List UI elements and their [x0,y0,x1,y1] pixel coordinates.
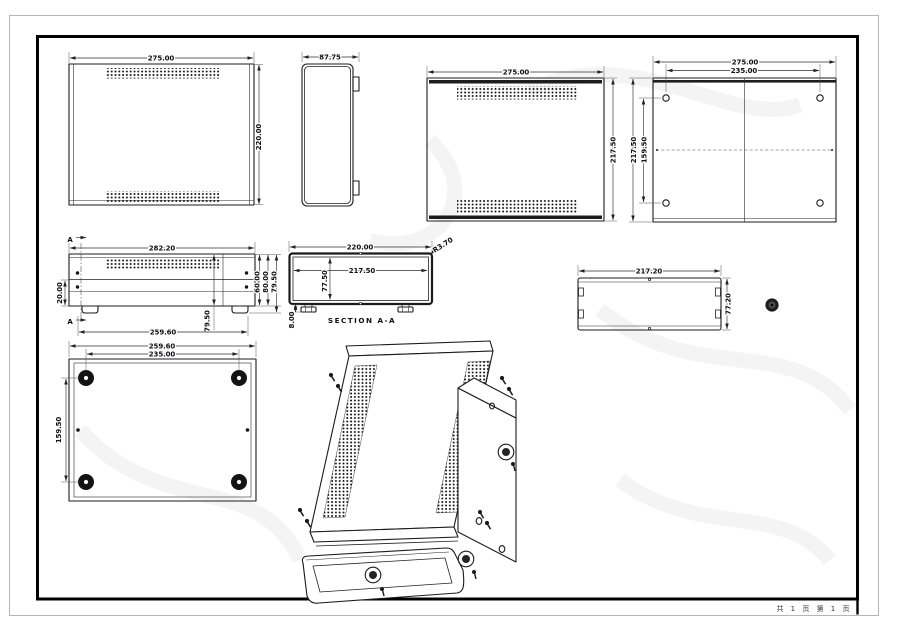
vent-strip [457,200,577,214]
view-base-plate: 275.00 235.00 217.50 159.50 [629,56,836,222]
dim-outer-width: 220.00 [347,244,374,252]
section-mark-top: A [67,236,73,244]
dim-height: 77.20 [725,293,733,315]
dim-hole-spacing-w: 235.00 [731,67,758,75]
dim-height-a: 60.00 [254,271,262,293]
dim-lower-height: 20.00 [56,282,64,304]
mounting-hole [663,95,669,101]
vent-strip [105,191,220,203]
dim-foot-height: 8.00 [288,311,296,328]
dim-height-b: 80.00 [262,271,270,293]
dim-body-height: 79.50 [204,310,212,332]
drawing-sheet: 共 1 页 第 1 页 275.00 220.00 87.75 275.00 [0,0,900,636]
dim-width: 282.20 [149,245,176,253]
dim-height: 220.00 [255,124,263,151]
section-title: SECTION A-A [328,316,396,325]
drawing-canvas: 共 1 页 第 1 页 275.00 220.00 87.75 275.00 [0,0,900,636]
dim-inner-height: 77.50 [321,270,329,292]
dim-height: 217.50 [610,137,618,164]
vent-strip [105,68,220,79]
section-mark-bottom: A [67,318,73,326]
view-isometric-exploded [298,341,516,603]
dim-foot-spacing-w: 235.00 [149,351,176,359]
page-note: 共 1 页 第 1 页 [776,604,852,613]
dim-hole-spacing-h: 159.50 [641,137,649,164]
dim-width: 259.60 [149,343,176,351]
dim-width: 87.75 [319,54,341,62]
view-section-aa: 220.00 217.50 77.50 8.00 R3.70 SECTION A… [288,236,455,329]
dim-foot-spacing-h: 159.50 [55,417,63,444]
view-panel-side: 87.75 [302,52,359,206]
vent-strip [105,258,219,269]
mounting-hole [817,95,823,101]
mounting-hole [817,200,823,206]
dim-width: 275.00 [148,55,175,63]
dim-width: 217.20 [636,268,663,276]
dim-width: 275.00 [732,59,759,67]
cover-edge-band [429,80,602,84]
section-foot [398,305,413,313]
mounting-hole [663,200,669,206]
cover-edge-band [429,216,602,220]
rubber-foot-detail [765,298,778,311]
dim-height: 217.50 [630,137,638,164]
view-panel-front: 275.00 220.00 [69,52,263,205]
foot [82,306,98,313]
dim-base-width: 259.60 [150,329,177,337]
dim-width: 275.00 [503,69,530,77]
vent-strip [457,86,577,100]
dim-inner-width: 217.50 [349,267,376,275]
foot [232,306,248,313]
section-foot [301,305,316,313]
view-chassis-front: 282.20 20.00 A A 60.00 80.00 79.50 79.50… [56,236,281,337]
dim-height-c: 79.50 [271,271,279,293]
